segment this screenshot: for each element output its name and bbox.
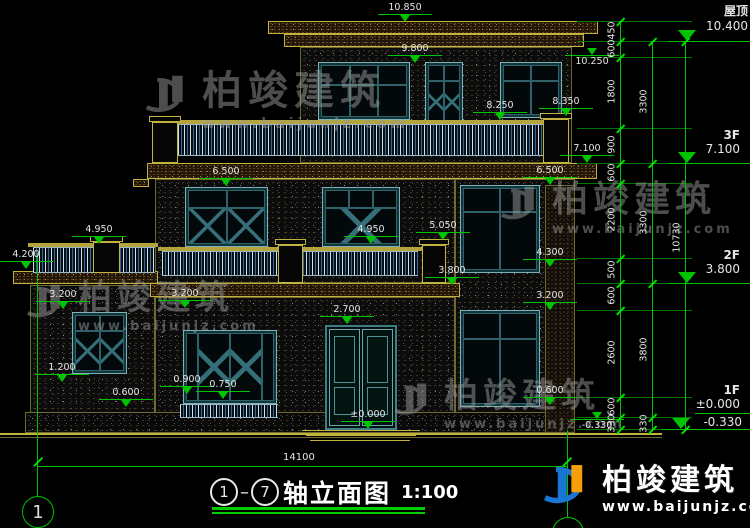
pillar-2f-b	[278, 245, 303, 283]
level-roof: 屋顶10.400	[706, 2, 748, 33]
level-3f: 3F7.100	[706, 128, 740, 156]
dim-10730: 10730	[672, 216, 683, 260]
spot-level-8350: 8.350	[539, 97, 593, 116]
level-2f: 2F3.800	[706, 248, 740, 276]
spot-level-8250: 8.250	[473, 101, 527, 120]
pillar-2f-b-cap	[275, 239, 306, 245]
pillar-2f-a	[93, 242, 120, 273]
dim-chain-outer	[685, 41, 686, 429]
dim-330a: 330	[607, 402, 618, 446]
spot-level-3200-left: 3.200	[36, 290, 90, 309]
level-line-ground	[662, 429, 750, 430]
title-underline-2	[212, 512, 425, 514]
dim-3300b: 3300	[639, 201, 650, 245]
spot-level-0600-left: 0.600	[99, 388, 153, 407]
drawing-title: 1 – 7 轴立面图 1:100	[210, 474, 458, 510]
spot-level-6500-left: 6.500	[199, 167, 253, 186]
step-line	[302, 430, 420, 431]
title-underline-1	[212, 507, 425, 510]
dim-3800: 3800	[639, 328, 650, 372]
spot-level-5050: 5.050	[416, 221, 470, 240]
dim-chain-inner	[620, 21, 621, 429]
dim-600b: 600	[607, 151, 618, 195]
spot-level-2700: 2.700	[320, 305, 374, 324]
dim-2600: 2600	[607, 331, 618, 375]
spot-level-3200-right: 3.200	[523, 291, 577, 310]
watermark-logo-icon	[138, 67, 194, 123]
spot-level-0600-right: 0.600	[523, 386, 577, 405]
spot-level-4950-center: 4.950	[344, 225, 398, 244]
level-line-roof	[668, 41, 750, 42]
level-ground: -0.330	[703, 415, 742, 429]
spot-level-4300: 4.300	[523, 248, 577, 267]
axis-bubble-1: 1	[22, 496, 54, 528]
level-marker-3f	[678, 152, 696, 163]
vent-1f-center	[180, 404, 278, 418]
dim-1800: 1800	[607, 70, 618, 114]
title-scale: 1:100	[401, 482, 458, 503]
dim-600a: 600	[607, 27, 618, 71]
spot-level-0000: ±0.000	[341, 410, 395, 429]
step-line	[306, 435, 416, 436]
level-line-2f	[668, 283, 750, 284]
level-marker-2f	[678, 272, 696, 283]
spot-level-1200: 1.200	[35, 363, 89, 382]
extension-line	[577, 128, 692, 129]
window-2f-left	[185, 187, 268, 247]
dim-chain-middle	[652, 41, 653, 429]
spot-level-3200-mid: 3.200	[158, 289, 212, 308]
spot-level-4950-left: 4.950	[72, 225, 126, 244]
spot-level-4200: 4.200	[0, 250, 53, 269]
level-line-1f	[695, 413, 750, 414]
level-line-3f	[668, 163, 750, 164]
watermark-top-left: 柏竣建筑 www.baijunjz.com	[138, 58, 409, 132]
spot-level-3800-center: 3.800	[425, 266, 479, 285]
corbel-3f	[133, 179, 149, 187]
elevation-drawing: 柏竣建筑 www.baijunjz.com 柏竣建筑 www.baijunjz.…	[0, 0, 750, 528]
extension-line	[577, 310, 692, 311]
dim-line-14100	[37, 466, 567, 467]
dim-3300a: 3300	[639, 80, 650, 124]
ground-line-2	[0, 437, 662, 438]
dim-2200: 2200	[607, 198, 618, 242]
spot-level-0750: 0.750	[196, 380, 250, 399]
step-line	[310, 440, 410, 441]
spot-level-6500-right: 6.500	[523, 166, 577, 185]
level-1f: 1F±0.000	[696, 383, 740, 411]
title-text: 轴立面图	[283, 474, 391, 510]
spot-level-9800: 9.800	[388, 44, 442, 63]
roof-slab	[268, 21, 598, 34]
watermark-logo-icon	[388, 376, 436, 424]
dim-330b: 330	[639, 402, 650, 446]
spot-level-10850: 10.850	[378, 3, 432, 22]
axis-circle-from: 1	[210, 478, 238, 506]
axis-bubble-7-partial	[552, 517, 584, 528]
dim-600c: 600	[607, 274, 618, 318]
watermark-logo-icon	[494, 179, 544, 229]
axis-dash: –	[240, 482, 249, 503]
extension-line	[577, 21, 692, 22]
dim-14100: 14100	[283, 452, 315, 463]
axis-circle-to: 7	[251, 478, 279, 506]
door-3f-balcony	[425, 62, 463, 126]
brand-logo: 柏竣建筑 www.baijunjz.com	[536, 455, 750, 515]
